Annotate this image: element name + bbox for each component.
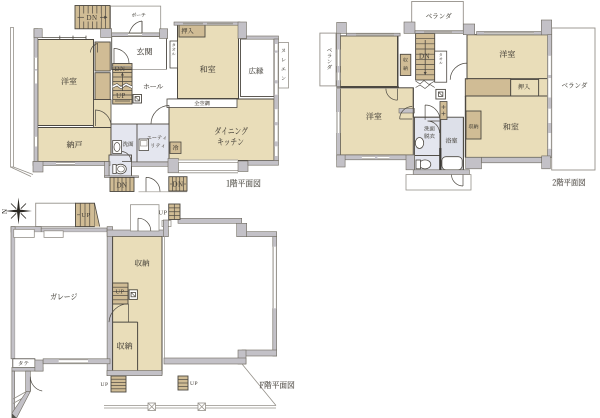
svg-text:UP: UP [116,93,126,100]
svg-text:UP: UP [116,289,125,296]
svg-text:DN: DN [419,53,430,61]
svg-text:UP: UP [100,382,108,388]
svg-text:DN: DN [116,181,127,189]
svg-text:UP: UP [190,381,198,387]
svg-text:N: N [1,209,9,214]
svg-text:UP: UP [81,212,90,219]
svg-text:DN: DN [86,14,97,22]
svg-text:DN: DN [172,180,183,188]
svg-text:UP: UP [158,210,167,217]
